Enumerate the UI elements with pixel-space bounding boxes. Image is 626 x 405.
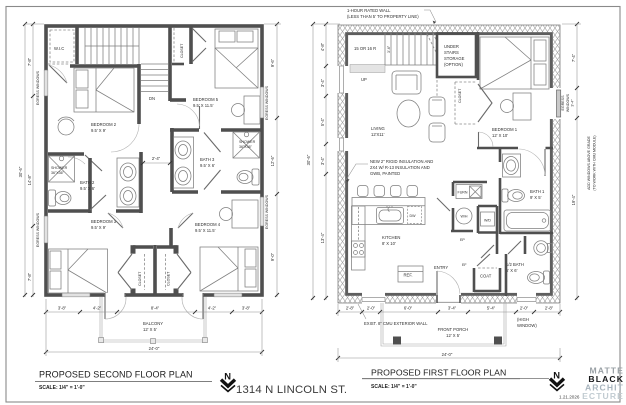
svg-text:9.5' X 6': 9.5' X 6' (80, 186, 95, 191)
svg-text:DW: DW (410, 214, 417, 218)
svg-text:7'-8": 7'-8" (27, 57, 32, 66)
svg-text:8'-4": 8'-4" (151, 306, 160, 311)
svg-text:ADD WINDOWS ABOVE GRADE: ADD WINDOWS ABOVE GRADE (587, 136, 591, 190)
svg-text:9'-0": 9'-0" (270, 252, 275, 261)
svg-text:CLOSET: CLOSET (138, 271, 142, 286)
svg-text:1.21.2026: 1.21.2026 (559, 395, 580, 400)
svg-text:7'-4": 7'-4" (571, 53, 576, 62)
svg-text:BEDROOM 1: BEDROOM 1 (492, 127, 518, 132)
svg-text:9.5' X 11.5': 9.5' X 11.5' (195, 228, 216, 233)
svg-text:STAIRS: STAIRS (444, 50, 459, 55)
svg-text:24'-0": 24'-0" (442, 352, 453, 357)
svg-text:REF.: REF. (404, 273, 413, 278)
svg-text:36"X36": 36"X36" (239, 145, 253, 149)
svg-text:EXIST. 8" CMU EXTERIOR WALL: EXIST. 8" CMU EXTERIOR WALL (364, 321, 428, 326)
svg-text:(LESS THAN 5' TO PROPERTY LINE: (LESS THAN 5' TO PROPERTY LINE) (347, 14, 419, 19)
svg-text:FRONT PORCH: FRONT PORCH (438, 327, 469, 332)
svg-text:BATH 2: BATH 2 (80, 180, 95, 185)
svg-text:KITCHEN: KITCHEN (382, 235, 400, 240)
svg-text:3'-4": 3'-4" (448, 306, 457, 311)
svg-text:4'-2": 4'-2" (93, 306, 102, 311)
svg-text:19'-4": 19'-4" (571, 194, 576, 205)
svg-text:STORAGE: STORAGE (444, 56, 465, 61)
svg-text:BATH 1: BATH 1 (530, 189, 545, 194)
svg-text:(HIGH: (HIGH (517, 317, 529, 322)
svg-text:ENTRY: ENTRY (434, 265, 448, 270)
svg-text:1-HOUR RATED WALL: 1-HOUR RATED WALL (347, 8, 391, 13)
svg-text:7'-8": 7'-8" (27, 272, 32, 281)
svg-text:2'-8": 2'-8" (545, 306, 554, 311)
svg-text:BATH 3: BATH 3 (200, 157, 215, 162)
svg-text:EGRESS WINDOWS: EGRESS WINDOWS (36, 212, 40, 247)
svg-text:12' X 10': 12' X 10' (492, 133, 508, 138)
svg-text:W/H: W/H (461, 215, 468, 219)
svg-text:CLOSET: CLOSET (458, 88, 462, 103)
svg-text:SHOWER: SHOWER (51, 166, 68, 170)
svg-text:12' X 5': 12' X 5' (446, 333, 460, 338)
svg-text:24'-0": 24'-0" (149, 346, 160, 351)
svg-text:30'-6": 30'-6" (18, 166, 23, 177)
svg-text:EF: EF (462, 263, 467, 267)
svg-text:EP: EP (460, 238, 465, 242)
svg-text:SHOWER: SHOWER (239, 140, 256, 144)
svg-text:COAT: COAT (480, 274, 492, 279)
svg-text:W.I.C: W.I.C (54, 46, 64, 51)
svg-text:36"X36": 36"X36" (51, 171, 65, 175)
svg-text:EGRESS WINDOWS: EGRESS WINDOWS (36, 70, 40, 105)
svg-text:N: N (224, 371, 231, 382)
svg-text:13'-4": 13'-4" (320, 232, 325, 243)
svg-text:EGRESS WINDOWS: EGRESS WINDOWS (265, 85, 269, 120)
svg-text:EGRESS: EGRESS (561, 95, 565, 111)
svg-text:2'-0": 2'-0" (367, 306, 376, 311)
svg-text:15 OR 16 R: 15 OR 16 R (354, 46, 376, 51)
svg-text:12'X11': 12'X11' (371, 132, 385, 137)
svg-text:FURN: FURN (458, 191, 468, 195)
svg-text:5'-4": 5'-4" (320, 117, 325, 126)
svg-text:WINDOWS: WINDOWS (566, 93, 570, 112)
svg-text:GWB, PAINTED: GWB, PAINTED (370, 171, 400, 176)
svg-text:12' X 5': 12' X 5' (143, 327, 157, 332)
svg-text:9.5' X 6': 9.5' X 6' (200, 163, 215, 168)
svg-text:NEW 2" RIGID INSULATION AND: NEW 2" RIGID INSULATION AND (370, 159, 433, 164)
svg-text:N: N (553, 370, 560, 381)
svg-text:2'-8": 2'-8" (346, 306, 355, 311)
svg-text:3'-4": 3'-4" (320, 156, 325, 165)
svg-text:2'-4": 2'-4" (152, 156, 161, 161)
svg-text:BEDROOM 2: BEDROOM 2 (91, 122, 117, 127)
svg-text:9'-6": 9'-6" (270, 58, 275, 67)
svg-text:5'-4": 5'-4" (487, 306, 496, 311)
svg-text:PROPOSED SECOND FLOOR PLAN: PROPOSED SECOND FLOOR PLAN (39, 370, 193, 380)
svg-text:14'-8": 14'-8" (27, 174, 32, 185)
svg-text:8' X 10': 8' X 10' (382, 241, 396, 246)
svg-text:5' X 6': 5' X 6' (506, 268, 518, 273)
svg-text:DN: DN (149, 96, 155, 101)
svg-text:3'-4": 3'-4" (320, 78, 325, 87)
svg-text:CLOSET: CLOSET (167, 271, 171, 286)
svg-text:BEDROOM 3: BEDROOM 3 (91, 219, 117, 224)
svg-text:9' X 5': 9' X 5' (530, 195, 542, 200)
svg-text:(TO WORK WITH CMU MODULE): (TO WORK WITH CMU MODULE) (593, 135, 597, 190)
svg-text:BEDROOM 4: BEDROOM 4 (195, 222, 221, 227)
svg-text:BEDROOM 5: BEDROOM 5 (193, 97, 219, 102)
svg-text:BALCONY: BALCONY (143, 321, 163, 326)
svg-text:3'-8": 3'-8" (242, 306, 251, 311)
svg-text:EGRESS WINDOWS: EGRESS WINDOWS (265, 194, 269, 229)
svg-text:9.5' X 11.5': 9.5' X 11.5' (193, 103, 214, 108)
svg-text:9.5' X 9': 9.5' X 9' (91, 128, 106, 133)
svg-text:WINDOW): WINDOW) (517, 323, 537, 328)
svg-text:6'-0": 6'-0" (404, 306, 413, 311)
svg-text:CLOSET: CLOSET (180, 43, 184, 58)
svg-text:30'-6": 30'-6" (306, 154, 311, 165)
svg-text:4'-2": 4'-2" (208, 306, 217, 311)
svg-text:ECTURE: ECTURE (582, 391, 624, 401)
svg-text:3'-4": 3'-4" (571, 99, 575, 107)
svg-text:2X4 W/ R-13 INSULATION AND: 2X4 W/ R-13 INSULATION AND (370, 165, 430, 170)
svg-text:LIVING: LIVING (371, 126, 385, 131)
svg-text:9.5' X 9': 9.5' X 9' (91, 225, 106, 230)
svg-text:2'-0": 2'-0" (520, 306, 529, 311)
svg-text:4'-8": 4'-8" (320, 42, 325, 51)
svg-text:1314 N LINCOLN ST.: 1314 N LINCOLN ST. (236, 384, 347, 396)
svg-text:PROPOSED FIRST FLOOR PLAN: PROPOSED FIRST FLOOR PLAN (371, 368, 506, 378)
svg-text:1/2 BATH: 1/2 BATH (506, 262, 524, 267)
svg-text:UP: UP (361, 77, 367, 82)
svg-text:3'-6": 3'-6" (387, 45, 391, 53)
svg-text:12'-6": 12'-6" (270, 155, 275, 166)
svg-text:SCALE: 1/4" = 1'-0": SCALE: 1/4" = 1'-0" (39, 385, 85, 391)
svg-text:W/D: W/D (484, 219, 491, 223)
svg-text:UNDER: UNDER (444, 44, 459, 49)
svg-text:(OPTION): (OPTION) (444, 62, 463, 67)
svg-text:3'-8": 3'-8" (58, 306, 67, 311)
svg-text:SCALE: 1/4" = 1'-0": SCALE: 1/4" = 1'-0" (371, 384, 417, 390)
